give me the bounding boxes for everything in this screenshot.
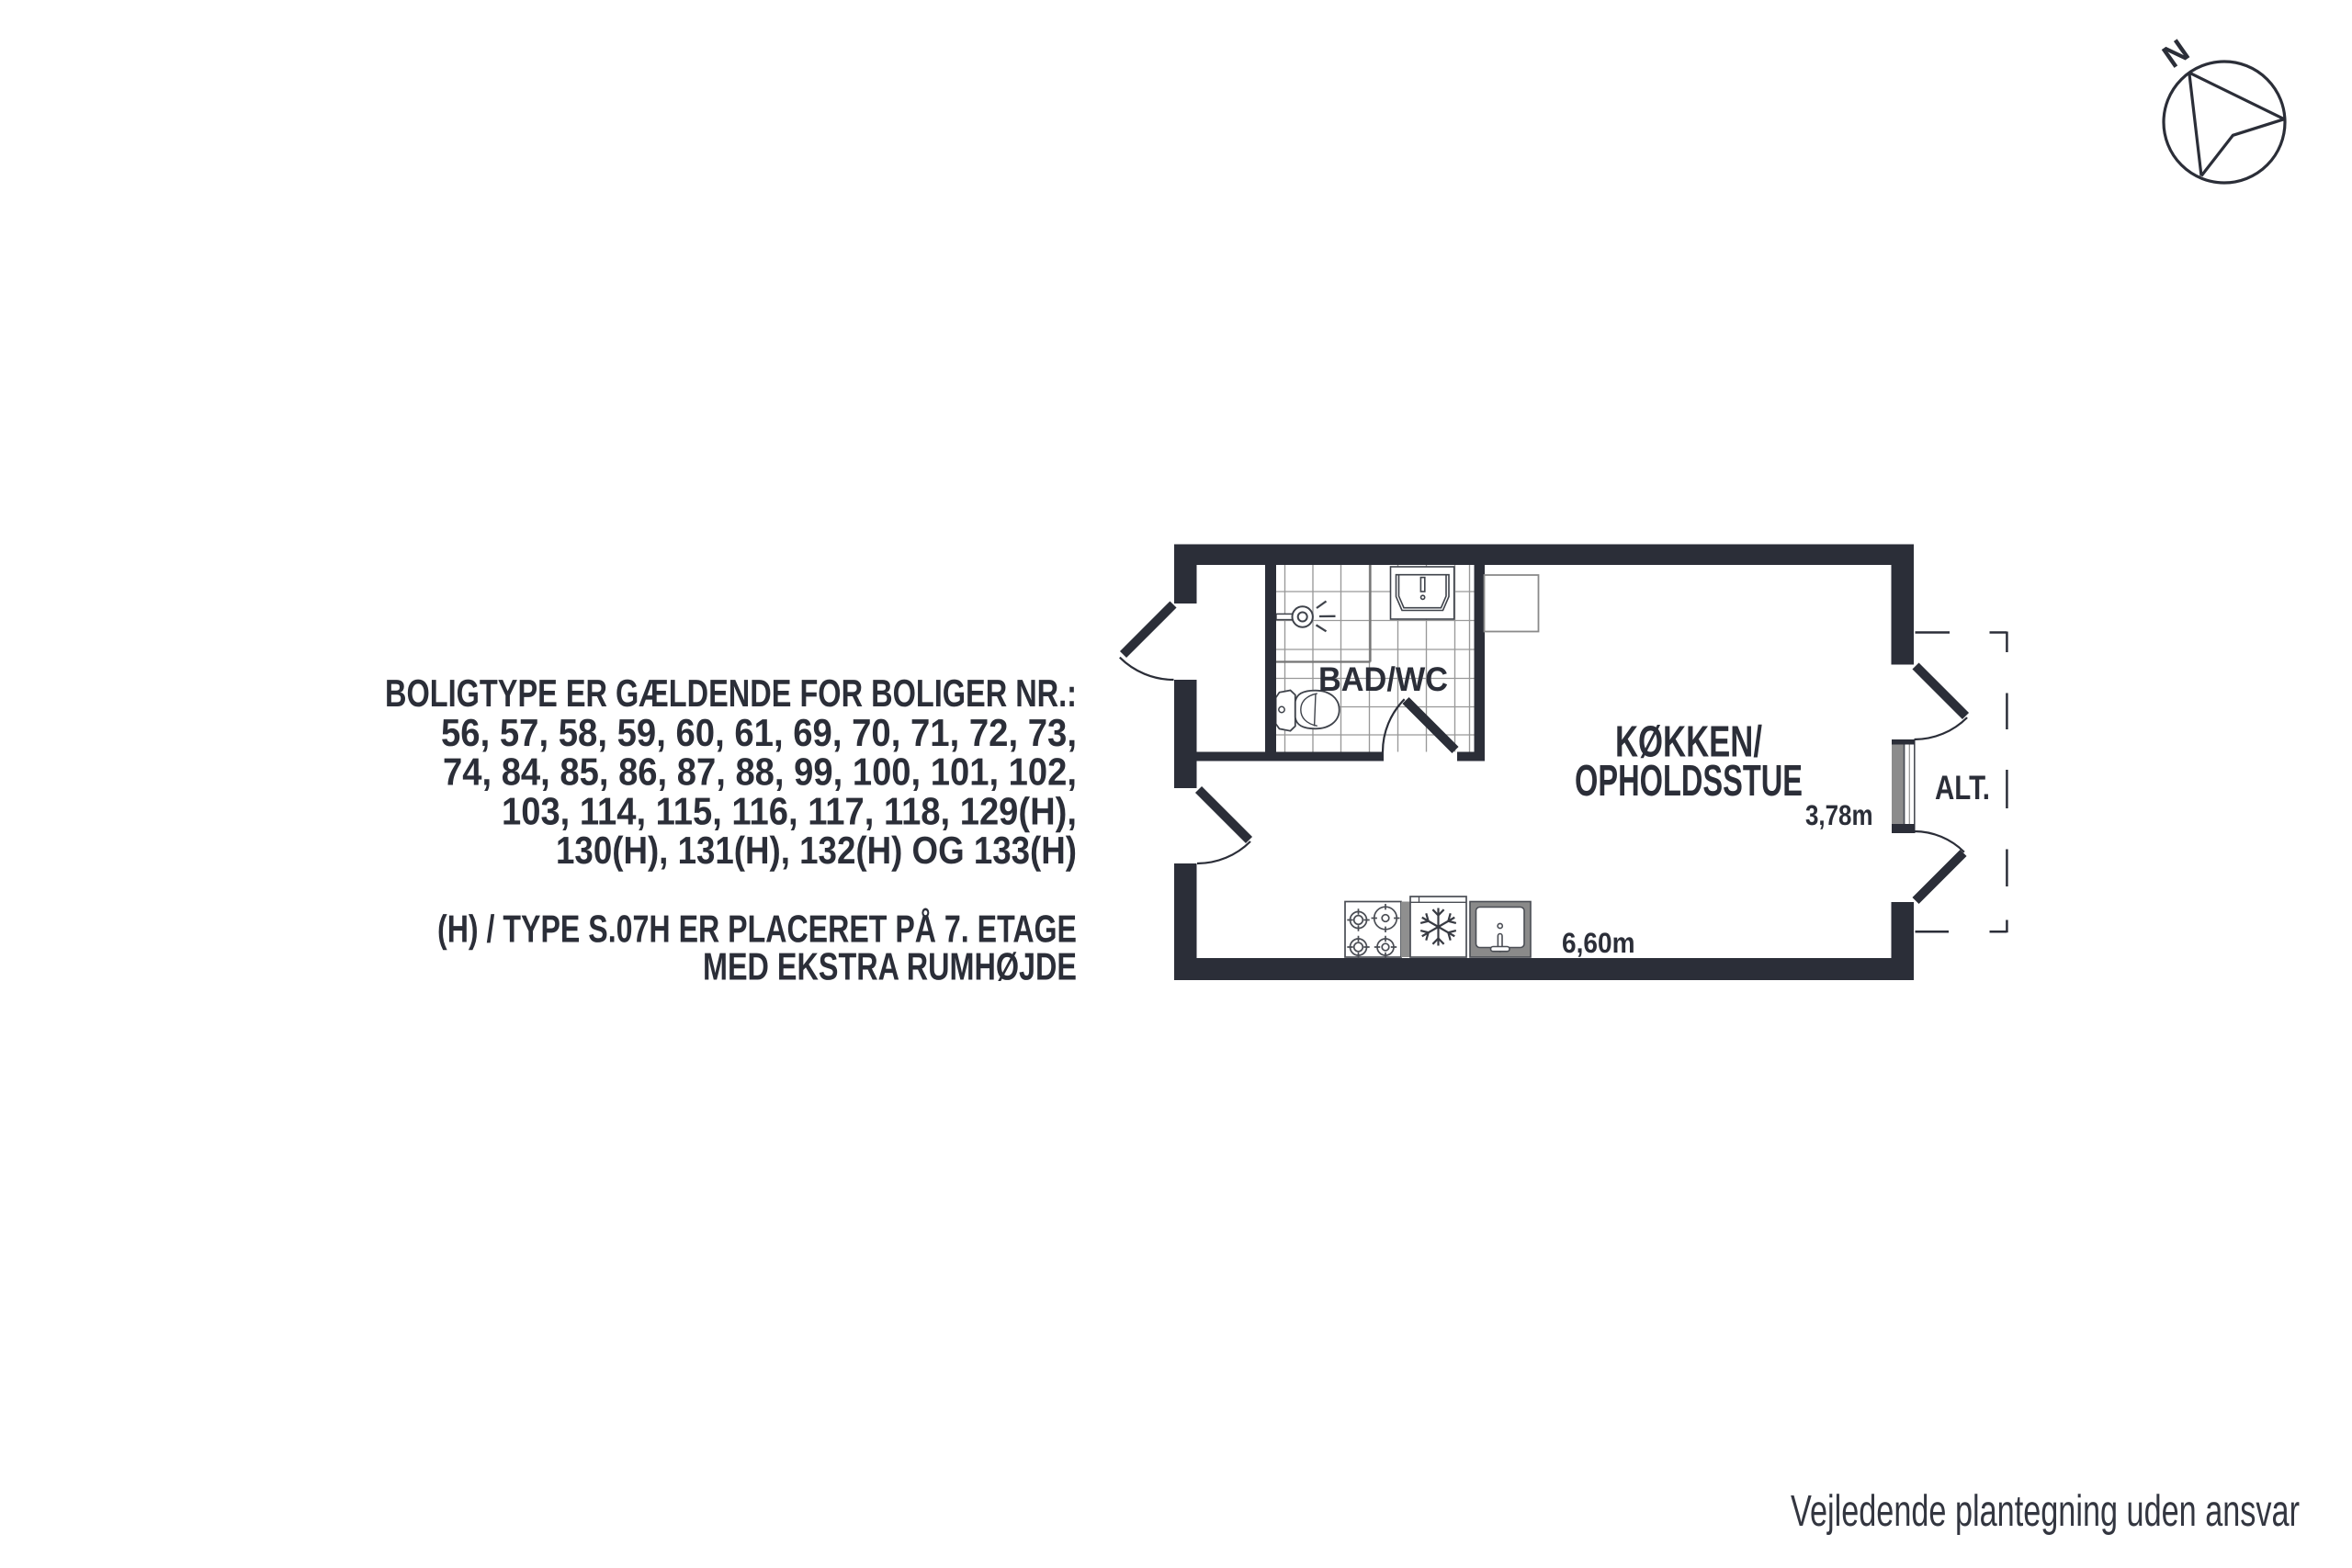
svg-text:3,78m: 3,78m bbox=[1805, 799, 1873, 831]
svg-text:N: N bbox=[2156, 32, 2196, 74]
svg-text:BAD/WC: BAD/WC bbox=[1318, 660, 1448, 698]
svg-text:Vejledende plantegning uden an: Vejledende plantegning uden ansvar bbox=[1791, 1487, 2300, 1536]
svg-text:56, 57, 58, 59, 60, 61, 69, 70: 56, 57, 58, 59, 60, 61, 69, 70, 71, 72, … bbox=[441, 711, 1077, 754]
svg-text:ALT.: ALT. bbox=[1935, 769, 1990, 807]
svg-text:OPHOLDSSTUE: OPHOLDSSTUE bbox=[1575, 757, 1803, 806]
svg-text:74, 84, 85, 86, 87, 88, 99, 10: 74, 84, 85, 86, 87, 88, 99, 100, 101, 10… bbox=[443, 750, 1077, 794]
svg-text:BOLIGTYPE ER GÆLDENDE FOR BOLI: BOLIGTYPE ER GÆLDENDE FOR BOLIGER NR.: bbox=[385, 671, 1077, 715]
svg-text:103, 114, 115, 116, 117, 118,: 103, 114, 115, 116, 117, 118, 129(H), bbox=[502, 789, 1077, 832]
svg-text:130(H), 131(H), 132(H) OG 133(: 130(H), 131(H), 132(H) OG 133(H) bbox=[556, 829, 1077, 872]
svg-text:MED EKSTRA RUMHØJDE: MED EKSTRA RUMHØJDE bbox=[703, 945, 1077, 988]
svg-text:(H) / TYPE S.07H ER PLACERET P: (H) / TYPE S.07H ER PLACERET PÅ 7. ETAGE bbox=[437, 908, 1077, 951]
svg-text:6,60m: 6,60m bbox=[1562, 927, 1635, 959]
